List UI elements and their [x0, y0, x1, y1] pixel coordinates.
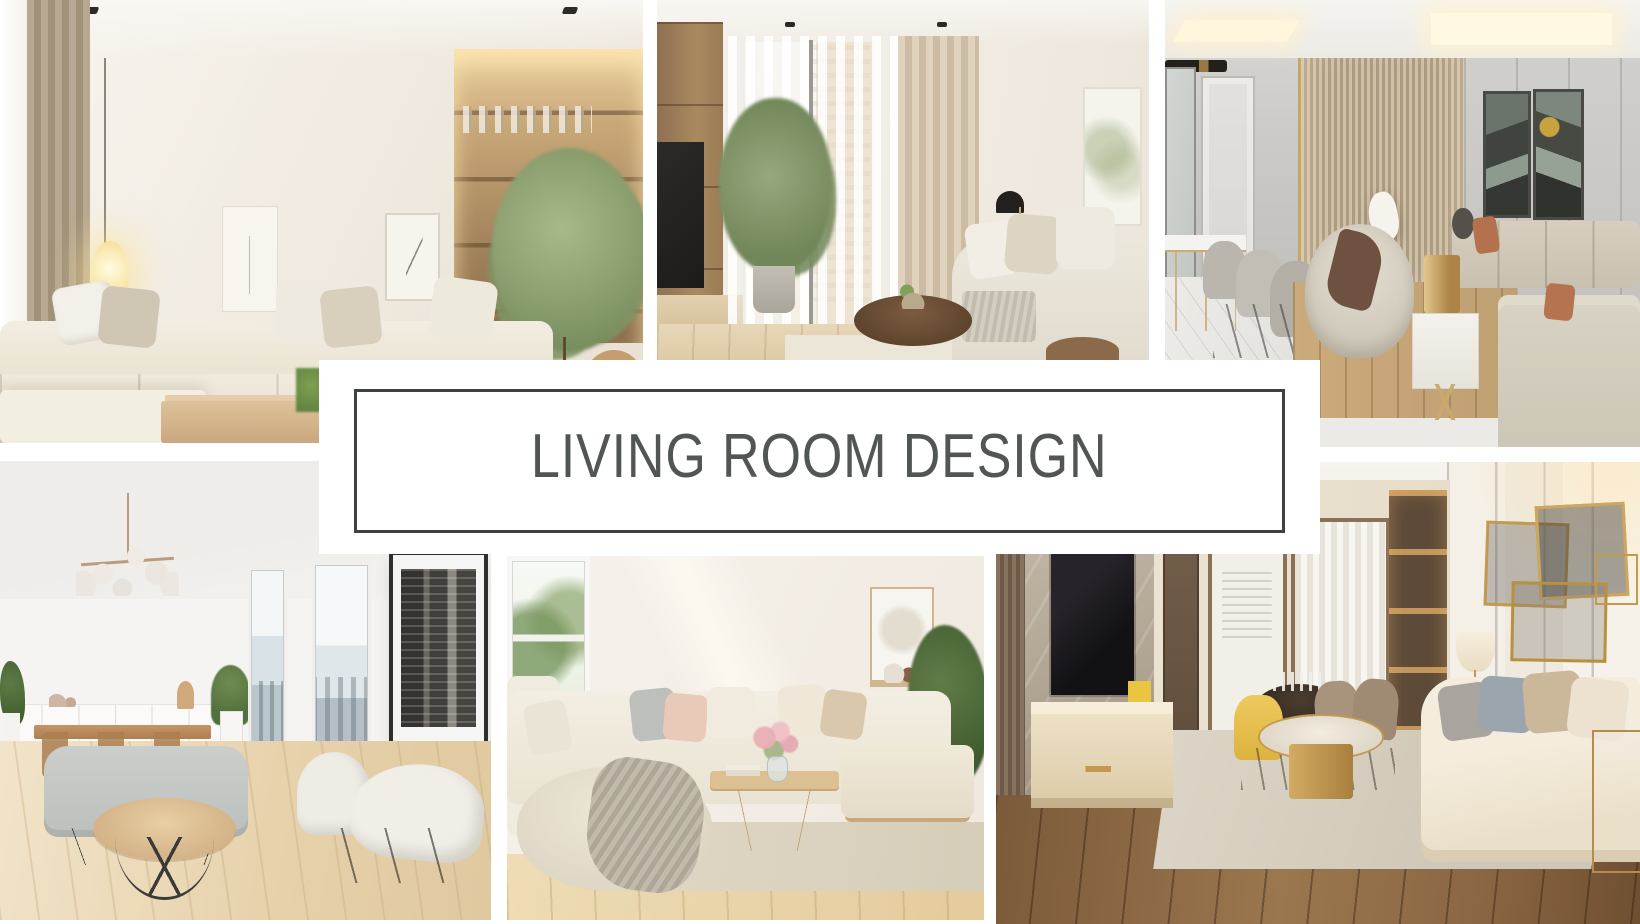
cove-light — [1173, 20, 1300, 42]
decor-sphere — [1452, 208, 1473, 239]
accent-pillow — [1471, 215, 1499, 254]
table-lamp — [177, 681, 194, 709]
photo-top-middle — [657, 0, 1149, 364]
shelf-books — [463, 106, 592, 133]
table-books — [726, 765, 759, 776]
sofa-pillow — [97, 285, 161, 348]
wine-glasses — [1273, 672, 1325, 690]
ceiling-spotlight — [561, 7, 578, 14]
wall-mounted-tv — [1051, 534, 1135, 696]
yellow-decor-box — [1128, 681, 1151, 702]
skyline-poster-image — [401, 569, 476, 727]
brass-table-lamp — [1424, 255, 1460, 313]
chandelier-globes — [76, 541, 179, 596]
lamp-cord — [104, 58, 106, 244]
sofa-pillow — [1056, 207, 1115, 269]
cove-light — [1431, 13, 1612, 44]
gold-side-table — [1592, 730, 1640, 873]
throw-blanket — [962, 291, 1036, 342]
sofa-pillow — [1004, 213, 1063, 276]
ottoman-chaise — [841, 745, 975, 818]
potted-tree — [719, 98, 832, 273]
media-console — [1031, 702, 1173, 808]
wall-art — [385, 213, 440, 302]
sideboard-decor — [49, 691, 88, 707]
abstract-artwork — [1536, 92, 1581, 217]
ceiling-spotlight — [937, 22, 947, 27]
photo-bottom-middle — [507, 556, 984, 920]
sofa-pillow — [427, 275, 499, 345]
wall-art — [1083, 87, 1142, 225]
sofa-pillow — [819, 688, 868, 741]
plant-pot — [753, 266, 795, 313]
city-view-window — [248, 567, 287, 764]
page-title: LIVING ROOM DESIGN — [531, 426, 1108, 488]
side-table-legs — [1419, 384, 1471, 420]
gold-table-base — [1289, 744, 1353, 799]
table-decor — [898, 284, 928, 309]
tv-screen — [657, 142, 704, 288]
ceiling-spotlight — [785, 22, 795, 27]
sofa-pillow — [522, 698, 573, 756]
abstract-artwork — [1486, 94, 1529, 215]
glass-vase — [767, 756, 788, 781]
collage-canvas: LIVING ROOM DESIGN — [0, 0, 1640, 924]
gold-wall-decor — [1510, 581, 1608, 663]
gold-wall-decor — [1595, 554, 1638, 604]
title-banner: LIVING ROOM DESIGN — [319, 360, 1320, 554]
sofa-pillow — [319, 285, 383, 348]
marble-side-table — [1412, 313, 1479, 389]
coffee-table-legs — [722, 789, 827, 851]
city-view-window — [312, 562, 371, 771]
sofa-pillow — [662, 693, 709, 744]
armchair-legs — [314, 828, 471, 883]
accent-pillow — [1543, 282, 1575, 321]
wall-art — [222, 206, 277, 312]
